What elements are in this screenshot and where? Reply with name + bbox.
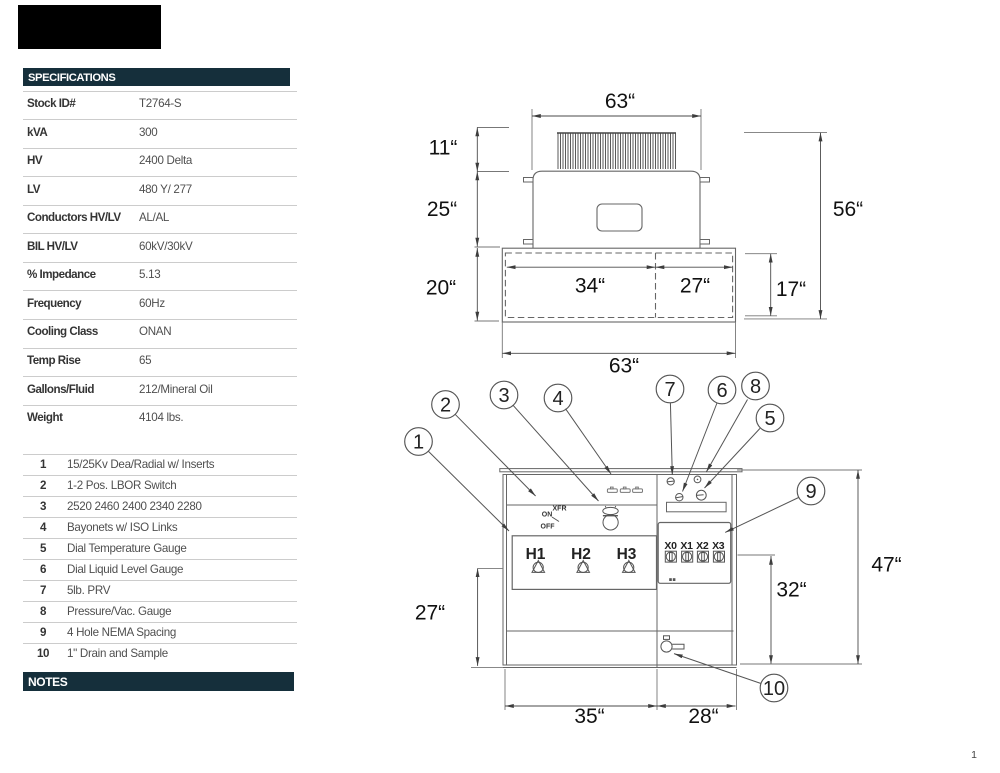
svg-text:X3: X3 <box>712 540 725 552</box>
svg-text:OFF: OFF <box>541 524 556 531</box>
svg-text:20“: 20“ <box>426 277 456 300</box>
svg-text:H1: H1 <box>526 546 546 563</box>
svg-text:7: 7 <box>664 379 675 401</box>
svg-text:9: 9 <box>805 481 816 503</box>
svg-text:35“: 35“ <box>574 705 604 728</box>
svg-text:2: 2 <box>440 395 451 417</box>
svg-text:4: 4 <box>552 388 563 410</box>
svg-text:56“: 56“ <box>833 198 863 221</box>
svg-text:8: 8 <box>750 376 761 398</box>
svg-text:H2: H2 <box>571 546 591 563</box>
svg-text:63“: 63“ <box>605 90 635 113</box>
svg-text:X2: X2 <box>696 540 709 552</box>
svg-text:32“: 32“ <box>776 579 806 602</box>
svg-text:34“: 34“ <box>575 275 605 298</box>
svg-text:5: 5 <box>764 408 775 430</box>
svg-text:1: 1 <box>413 432 424 454</box>
svg-text:27“: 27“ <box>415 602 445 625</box>
svg-text:3: 3 <box>498 385 509 407</box>
svg-text:28“: 28“ <box>688 705 718 728</box>
svg-text:63“: 63“ <box>609 355 639 378</box>
svg-text:XFR: XFR <box>553 506 567 513</box>
svg-text:H3: H3 <box>617 546 637 563</box>
svg-text:17“: 17“ <box>776 278 806 301</box>
svg-text:25“: 25“ <box>427 198 457 221</box>
svg-text:X1: X1 <box>680 540 693 552</box>
svg-text:27“: 27“ <box>680 275 710 298</box>
svg-text:10: 10 <box>763 678 785 700</box>
svg-text:ON: ON <box>542 512 553 519</box>
svg-text:6: 6 <box>716 380 727 402</box>
svg-text:11“: 11“ <box>429 137 458 160</box>
svg-text:X0: X0 <box>664 540 677 552</box>
svg-text:47“: 47“ <box>871 554 901 577</box>
